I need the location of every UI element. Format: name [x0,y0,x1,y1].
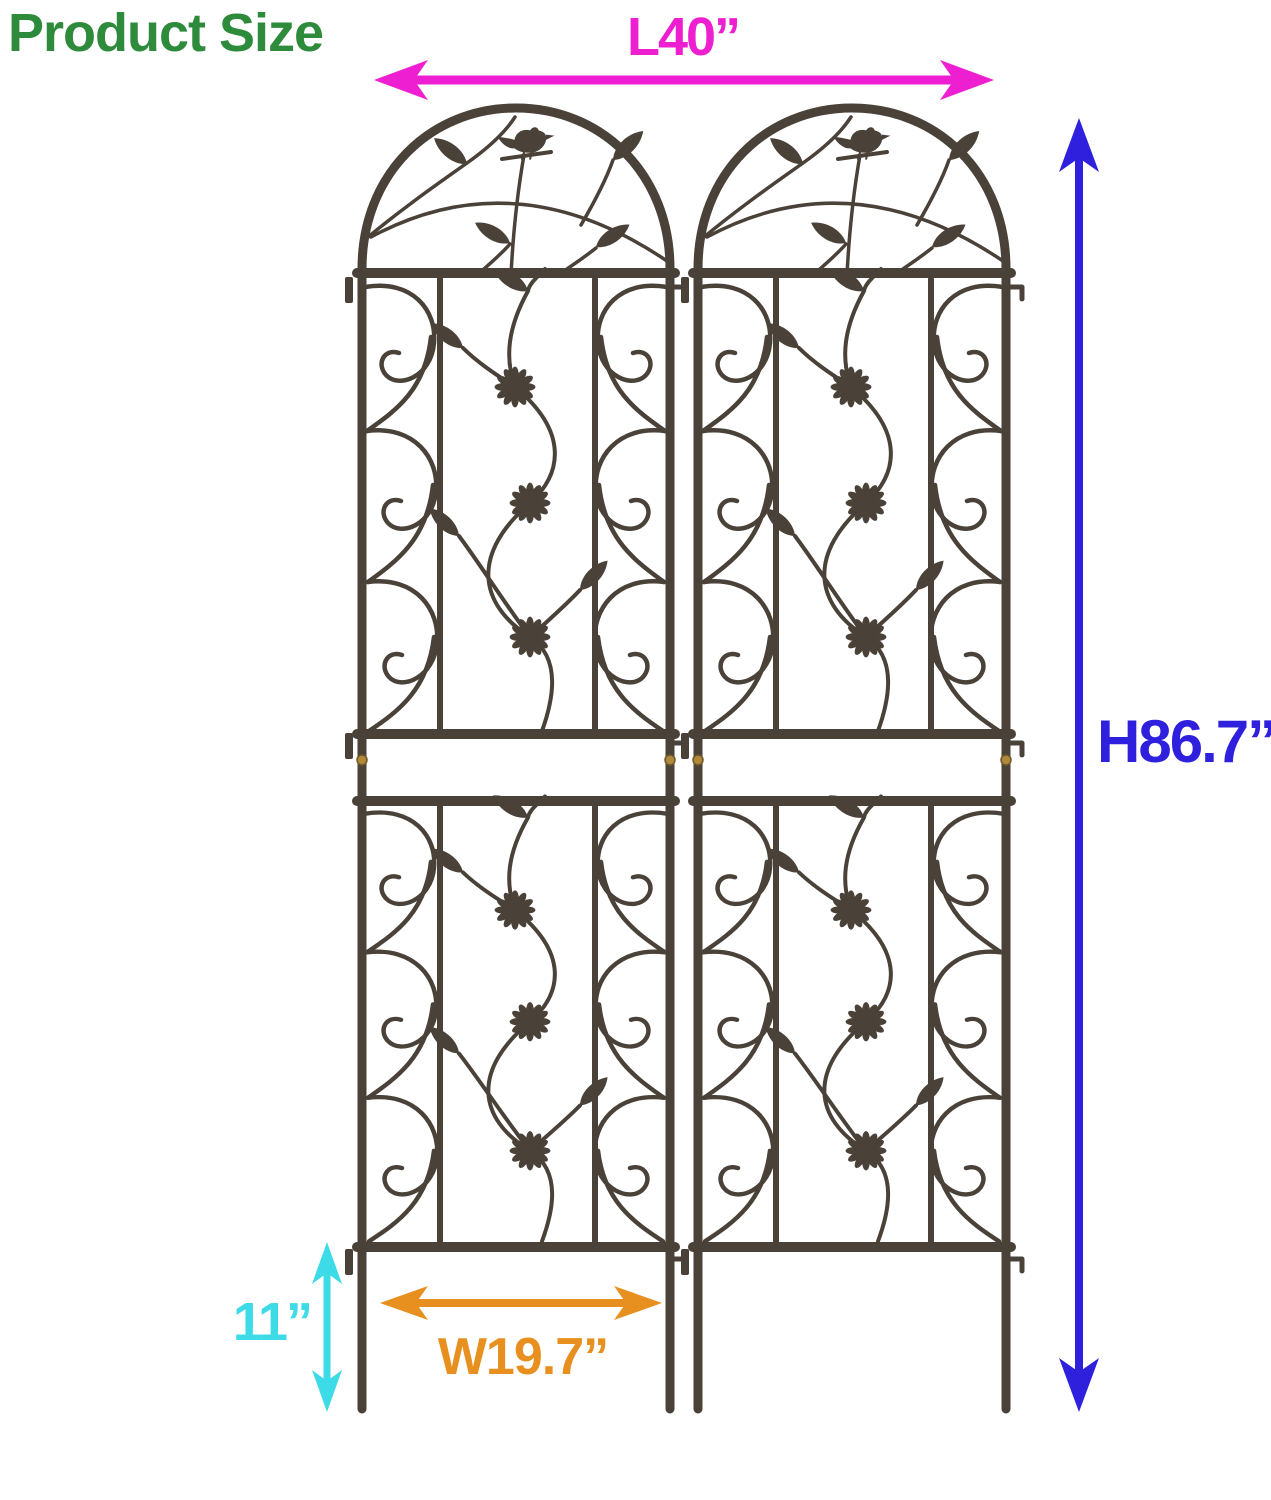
trellis-panel-right [681,108,1022,1409]
length-dimension-label: L40” [533,10,833,64]
panel-width-dimension-label: W19.7” [390,1331,656,1383]
trellis-illustration [0,0,1271,1500]
trellis-panels [345,108,1022,1409]
stake-height-dimension-label: 11” [205,1295,311,1349]
stake-height-dimension-arrow [312,1242,342,1412]
height-dimension-arrow [1059,118,1099,1412]
height-dimension-label: H86.7” [1097,712,1271,772]
trellis-panel-left [345,108,686,1409]
panel-width-dimension-arrow [380,1286,662,1320]
page-title: Product Size [8,6,323,60]
product-size-figure: Product Size L40” H86.7” 11” W19.7” [0,0,1271,1500]
